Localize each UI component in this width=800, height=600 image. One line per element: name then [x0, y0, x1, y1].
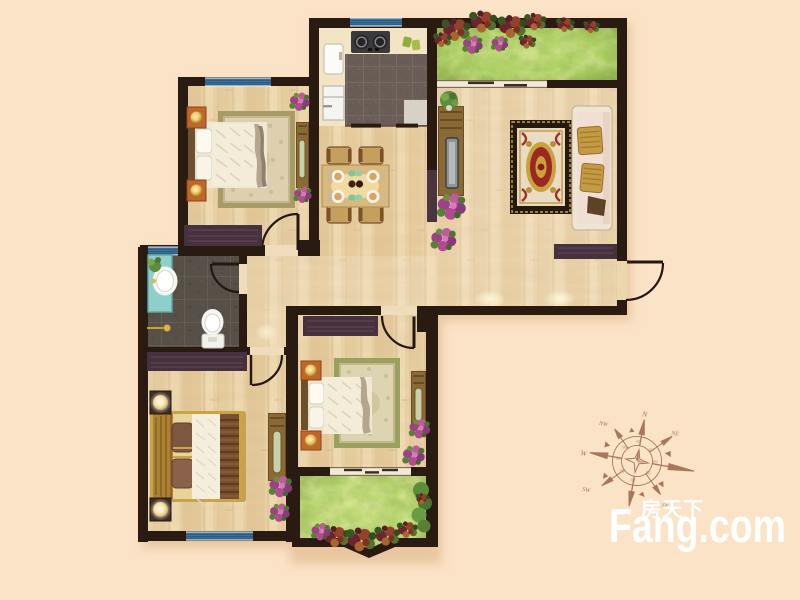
svg-text:Fang.com: Fang.com: [609, 499, 786, 552]
